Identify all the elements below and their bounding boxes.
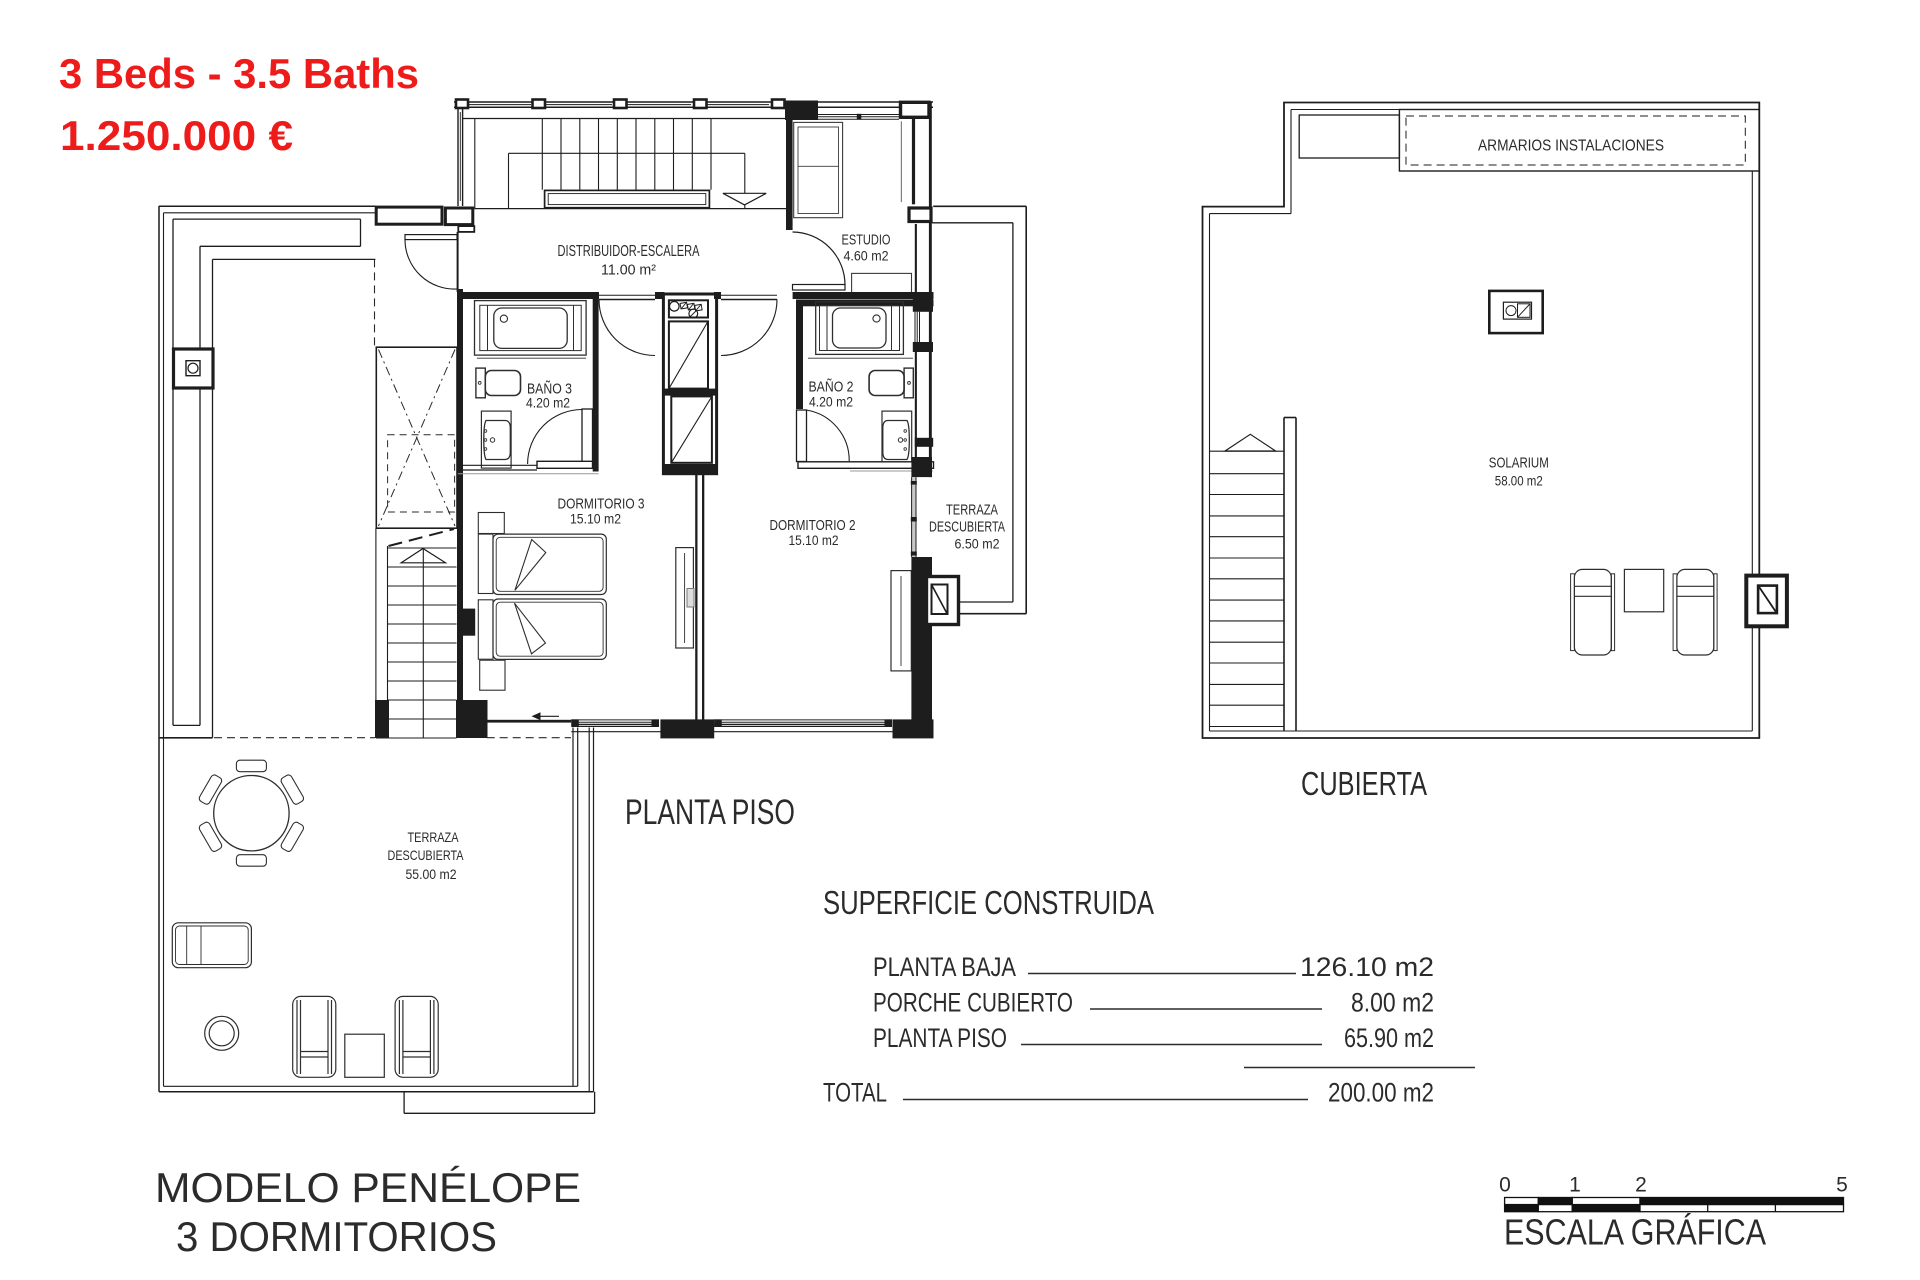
svg-text:4.20 m2: 4.20 m2 bbox=[526, 395, 570, 411]
svg-text:15.10 m2: 15.10 m2 bbox=[570, 511, 621, 527]
svg-text:TOTAL: TOTAL bbox=[823, 1078, 887, 1108]
svg-text:ESTUDIO: ESTUDIO bbox=[842, 232, 891, 249]
svg-text:SOLARIUM: SOLARIUM bbox=[1489, 455, 1549, 472]
svg-text:DISTRIBUIDOR-ESCALERA: DISTRIBUIDOR-ESCALERA bbox=[558, 243, 700, 260]
svg-text:0: 0 bbox=[1499, 1174, 1511, 1197]
svg-text:MODELO PENÉLOPE: MODELO PENÉLOPE bbox=[155, 1164, 581, 1211]
svg-text:2: 2 bbox=[1635, 1174, 1647, 1197]
svg-text:3 Beds - 3.5 Baths: 3 Beds - 3.5 Baths bbox=[59, 50, 419, 97]
svg-text:5: 5 bbox=[1836, 1174, 1848, 1197]
svg-text:126.10 m2: 126.10 m2 bbox=[1300, 952, 1434, 982]
svg-text:58.00 m2: 58.00 m2 bbox=[1495, 473, 1543, 489]
svg-text:CUBIERTA: CUBIERTA bbox=[1301, 765, 1427, 802]
svg-text:65.90 m2: 65.90 m2 bbox=[1344, 1023, 1434, 1053]
svg-text:PORCHE CUBIERTO: PORCHE CUBIERTO bbox=[873, 988, 1073, 1018]
svg-text:6.50 m2: 6.50 m2 bbox=[955, 536, 1000, 552]
svg-text:1: 1 bbox=[1569, 1174, 1581, 1197]
svg-text:SUPERFICIE CONSTRUIDA: SUPERFICIE CONSTRUIDA bbox=[823, 884, 1154, 921]
svg-text:11.00 m²: 11.00 m² bbox=[601, 263, 656, 279]
svg-text:3 DORMITORIOS: 3 DORMITORIOS bbox=[176, 1213, 497, 1260]
svg-text:ESCALA GRÁFICA: ESCALA GRÁFICA bbox=[1504, 1212, 1766, 1253]
svg-text:DESCUBIERTA: DESCUBIERTA bbox=[929, 519, 1005, 536]
svg-text:55.00 m2: 55.00 m2 bbox=[406, 866, 457, 882]
svg-text:PLANTA PISO: PLANTA PISO bbox=[625, 793, 795, 832]
svg-text:8.00 m2: 8.00 m2 bbox=[1351, 988, 1434, 1018]
svg-text:TERRAZA: TERRAZA bbox=[946, 502, 998, 519]
svg-text:TERRAZA: TERRAZA bbox=[408, 829, 460, 845]
svg-text:200.00 m2: 200.00 m2 bbox=[1328, 1078, 1434, 1108]
svg-text:PLANTA PISO: PLANTA PISO bbox=[873, 1023, 1007, 1053]
svg-text:DESCUBIERTA: DESCUBIERTA bbox=[388, 847, 465, 863]
svg-text:4.60 m2: 4.60 m2 bbox=[844, 248, 889, 264]
svg-text:1.250.000 €: 1.250.000 € bbox=[60, 112, 293, 159]
svg-text:ARMARIOS INSTALACIONES: ARMARIOS INSTALACIONES bbox=[1478, 138, 1664, 155]
svg-text:4.20 m2: 4.20 m2 bbox=[809, 394, 853, 410]
svg-text:15.10 m2: 15.10 m2 bbox=[789, 532, 839, 548]
svg-text:PLANTA BAJA: PLANTA BAJA bbox=[873, 952, 1016, 982]
